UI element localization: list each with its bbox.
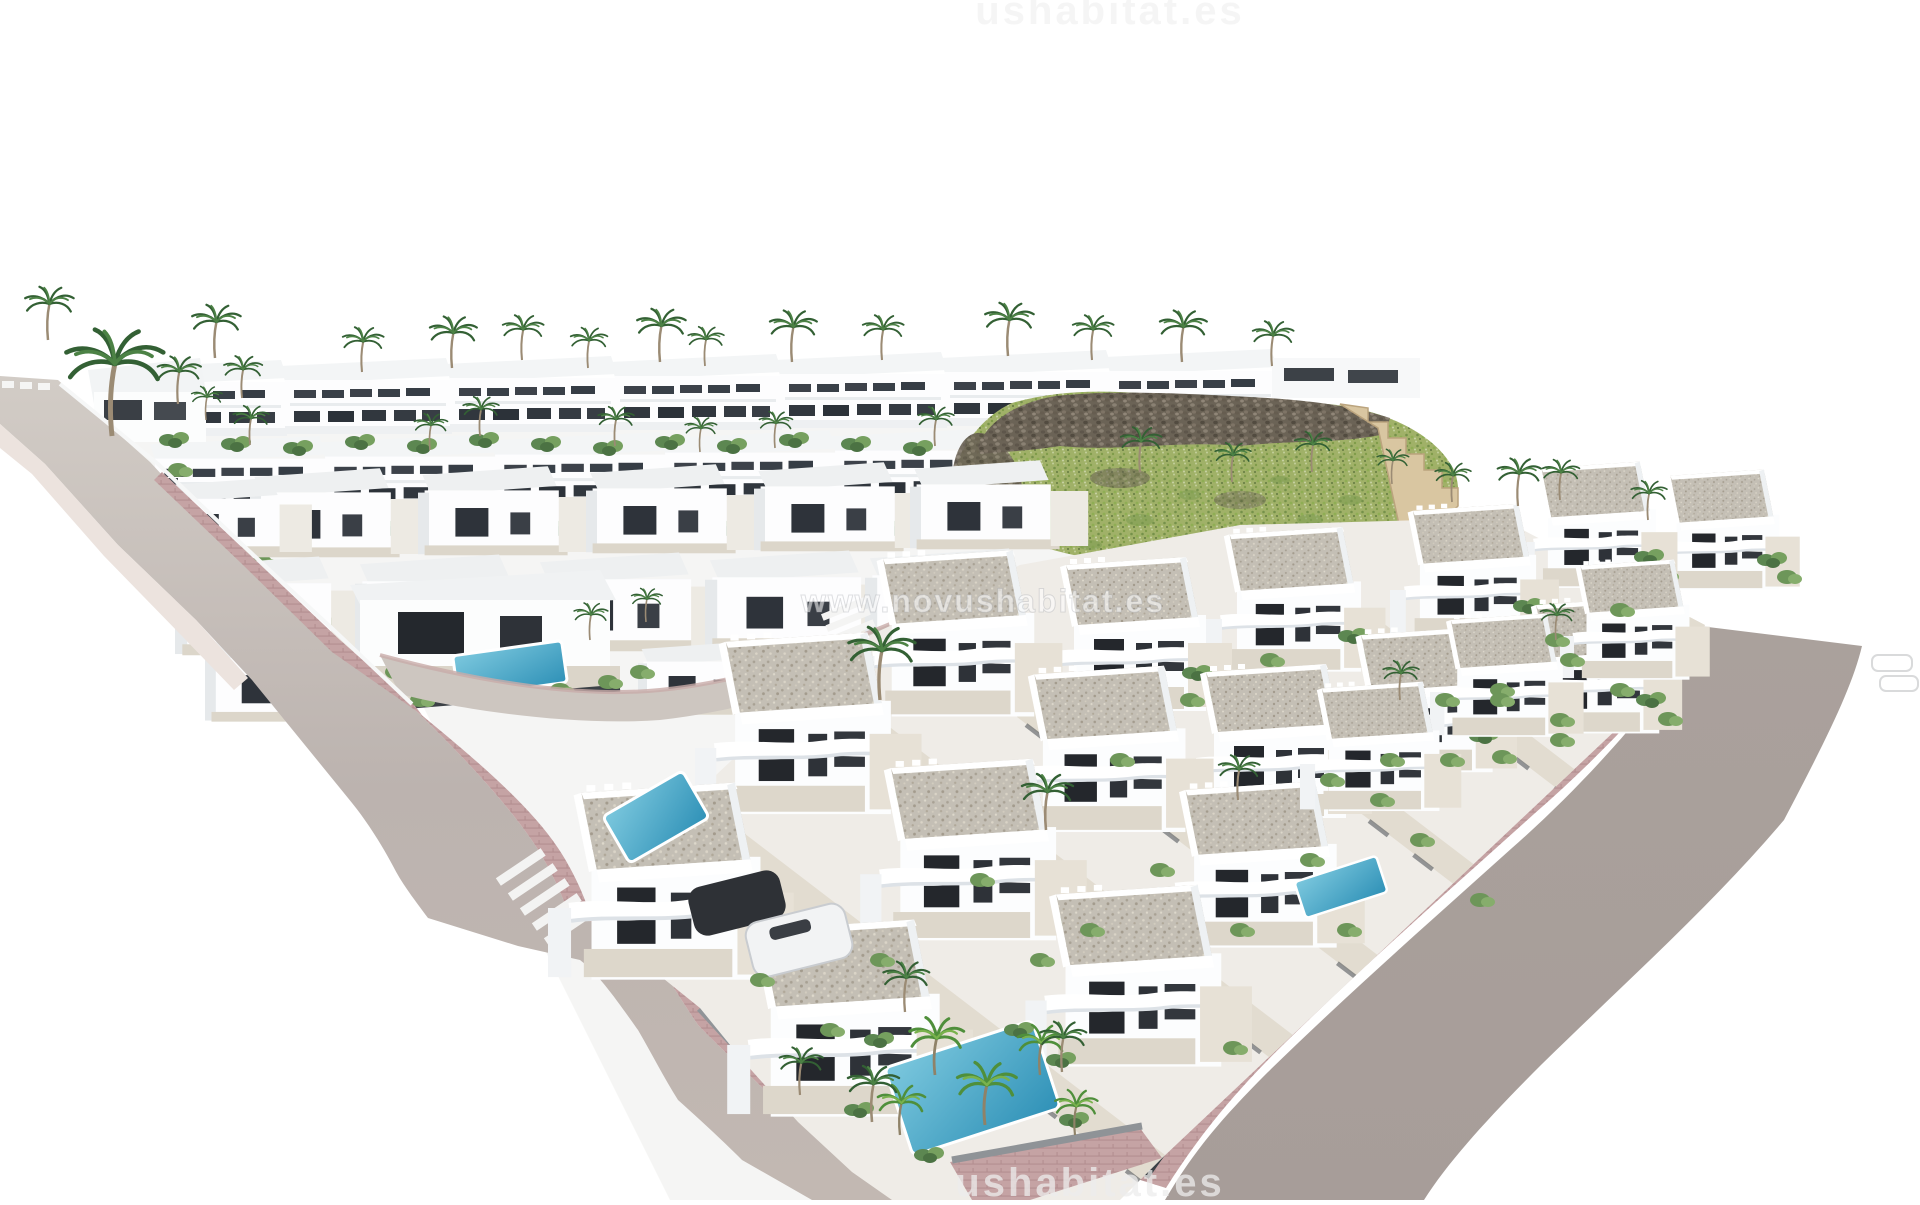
svg-text:ushabitat.es: ushabitat.es bbox=[955, 1161, 1224, 1200]
svg-text:www.novushabitat.es: www.novushabitat.es bbox=[800, 583, 1165, 619]
svg-text:ushabitat.es: ushabitat.es bbox=[975, 0, 1244, 33]
